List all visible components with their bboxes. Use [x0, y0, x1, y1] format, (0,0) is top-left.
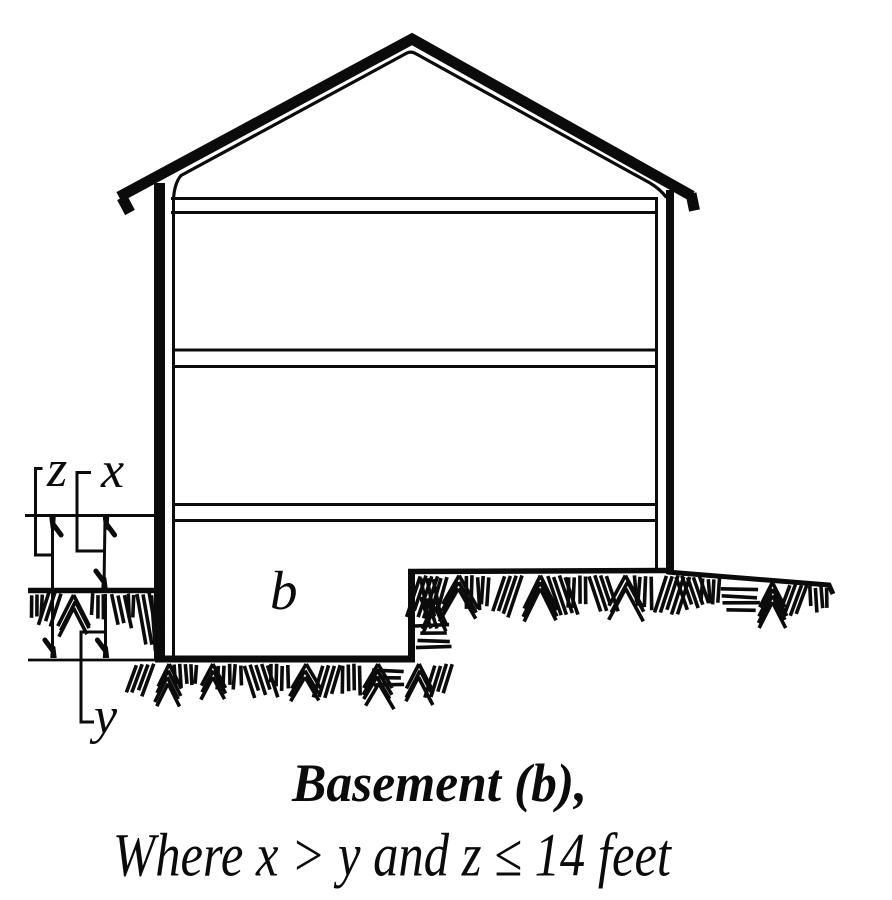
svg-text:y: y — [89, 688, 118, 745]
svg-text:x: x — [100, 442, 124, 499]
svg-text:z: z — [46, 441, 67, 498]
svg-text:Where x > y and z ≤ 14 feet: Where x > y and z ≤ 14 feet — [113, 823, 673, 890]
svg-text:b: b — [270, 560, 298, 621]
svg-text:Basement (b),: Basement (b), — [291, 753, 587, 813]
